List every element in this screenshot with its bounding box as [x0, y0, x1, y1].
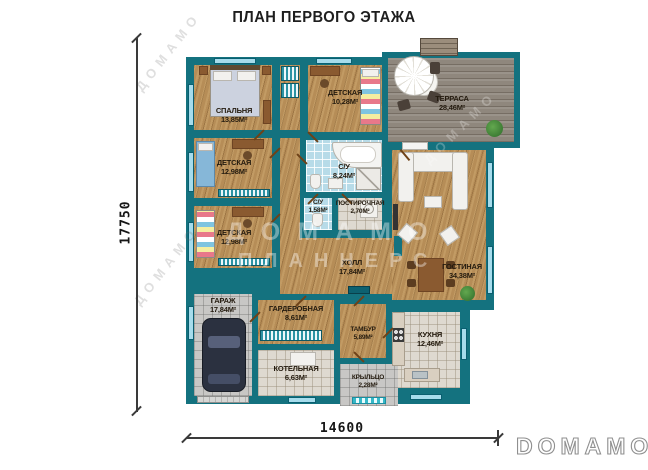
window: [316, 58, 352, 64]
chair: [407, 261, 416, 269]
page-title: ПЛАН ПЕРВОГО ЭТАЖА: [26, 10, 622, 26]
chair: [320, 79, 329, 88]
nightstand: [262, 66, 271, 75]
window: [214, 58, 256, 64]
window: [188, 222, 194, 262]
doormat: [352, 397, 386, 404]
kids-bed: [196, 210, 215, 258]
window: [461, 328, 467, 360]
car-windshield: [208, 336, 240, 348]
window: [288, 397, 316, 403]
pillow: [213, 71, 232, 81]
wardrobe-rack: [260, 330, 322, 341]
boiler-unit: [290, 352, 316, 366]
window: [188, 152, 194, 192]
garage-gate: [197, 396, 249, 403]
toilet: [310, 174, 321, 189]
tv: [393, 204, 398, 230]
pillow: [237, 71, 256, 81]
window: [487, 162, 493, 208]
wardrobe-unit: [281, 66, 299, 81]
bathtub-basin: [340, 146, 376, 163]
plant: [460, 286, 475, 301]
pillow: [198, 143, 213, 151]
shower: [356, 168, 381, 190]
brand-logo: DOMAMO: [516, 433, 642, 460]
pillow: [362, 69, 379, 77]
chair: [243, 151, 252, 160]
sink: [328, 178, 343, 189]
terrace-door: [402, 142, 428, 150]
chair: [446, 261, 455, 269]
sofa-arm: [398, 152, 414, 202]
desk: [232, 139, 264, 149]
hall-living-wall-stub: [394, 236, 402, 256]
nightstand: [199, 66, 208, 75]
hall-cabinet: [348, 286, 370, 294]
sink: [412, 371, 428, 379]
coffee-table: [424, 196, 442, 208]
dimension-value-horizontal: 14600: [286, 421, 398, 436]
toilet: [312, 213, 323, 227]
desk: [310, 66, 340, 76]
washing-machine-door: [364, 204, 374, 214]
chair: [446, 279, 455, 287]
floor-plan-canvas: ПЛАН ПЕРВОГО ЭТАЖА: [0, 0, 648, 470]
dimension-value-vertical: 17750: [119, 193, 134, 253]
window: [188, 84, 194, 126]
plant: [486, 120, 503, 137]
window: [188, 306, 194, 340]
desk: [232, 207, 264, 217]
dining-table: [418, 258, 444, 292]
shelf-unit: [218, 189, 270, 197]
terrace-chair: [430, 62, 440, 74]
chair: [243, 219, 252, 228]
terrace-steps: [420, 38, 458, 56]
sofa-arm: [452, 152, 468, 210]
bed-headboard: [210, 65, 260, 70]
dimension-line-vertical: [136, 38, 138, 412]
dimension-extension-line: [497, 430, 499, 446]
dimension-line-horizontal: [186, 437, 498, 439]
chair: [407, 279, 416, 287]
window: [487, 246, 493, 294]
parasol-icon: [394, 56, 434, 96]
dresser: [263, 100, 271, 124]
hall-corridor-floor: [280, 138, 300, 294]
room-vestibule-floor: [340, 304, 386, 358]
window: [410, 394, 442, 400]
wardrobe-unit: [281, 83, 299, 98]
car-rear-window: [208, 374, 240, 384]
shelf-unit: [218, 258, 270, 266]
stove: [393, 328, 404, 342]
